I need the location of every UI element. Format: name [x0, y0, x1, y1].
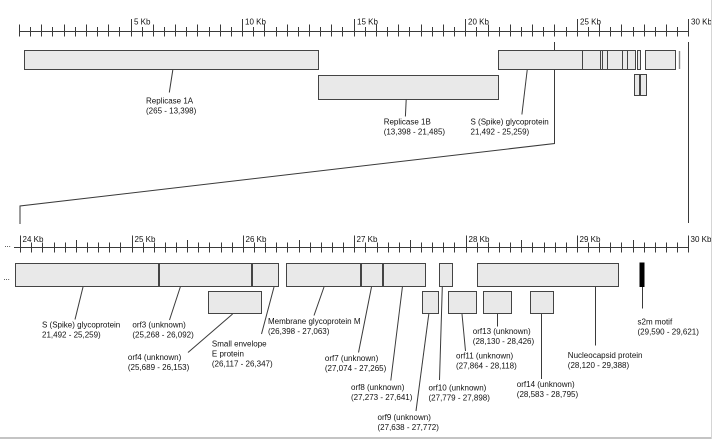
svg-text:Replicase 1A: Replicase 1A — [146, 97, 194, 106]
svg-text:27 Kb: 27 Kb — [357, 235, 378, 244]
svg-text:Nucleocapsid protein: Nucleocapsid protein — [568, 351, 643, 360]
svg-text:25 Kb: 25 Kb — [580, 18, 601, 27]
svg-text:10 Kb: 10 Kb — [245, 18, 266, 27]
svg-text:21,492 - 25,259): 21,492 - 25,259) — [42, 331, 101, 340]
svg-text:(27,273 - 27,641): (27,273 - 27,641) — [351, 393, 413, 402]
svg-text:orf7 (unknown): orf7 (unknown) — [325, 354, 379, 363]
svg-text:S (Spike) glycoprotein: S (Spike) glycoprotein — [42, 321, 120, 330]
svg-text:orf10 (unknown): orf10 (unknown) — [429, 383, 487, 392]
svg-text:25 Kb: 25 Kb — [135, 235, 156, 244]
svg-text:E protein: E protein — [212, 349, 244, 358]
svg-text:orf11 (unknown): orf11 (unknown) — [456, 351, 514, 360]
svg-text:26 Kb: 26 Kb — [246, 235, 267, 244]
svg-text:(27,074 - 27,265): (27,074 - 27,265) — [325, 364, 387, 373]
svg-text:(28,583 - 28,795): (28,583 - 28,795) — [517, 390, 579, 399]
svg-text:(265 - 13,398): (265 - 13,398) — [146, 107, 197, 116]
svg-text:(28,120 - 29,388): (28,120 - 29,388) — [568, 361, 630, 370]
svg-text:30 Kb: 30 Kb — [691, 18, 712, 27]
svg-text:S (Spike) glycoprotein: S (Spike) glycoprotein — [471, 118, 549, 127]
svg-text:orf13 (unknown): orf13 (unknown) — [473, 327, 531, 336]
svg-text:(25,268 - 26,092): (25,268 - 26,092) — [132, 330, 194, 339]
svg-text:24 Kb: 24 Kb — [23, 235, 44, 244]
svg-text:orf8 (unknown): orf8 (unknown) — [351, 383, 405, 392]
svg-text:(27,779 - 27,898): (27,779 - 27,898) — [429, 393, 491, 402]
svg-text:28 Kb: 28 Kb — [469, 235, 490, 244]
svg-text:Replicase 1B: Replicase 1B — [384, 118, 431, 127]
svg-text:Membrane glycoprotein M: Membrane glycoprotein M — [268, 317, 361, 326]
svg-text:(27,638 - 27,772): (27,638 - 27,772) — [378, 423, 440, 432]
svg-text:orf9 (unknown): orf9 (unknown) — [378, 413, 432, 422]
svg-text:(26,117 - 26,347): (26,117 - 26,347) — [212, 359, 273, 368]
svg-text:(28,130 - 28,426): (28,130 - 28,426) — [473, 337, 535, 346]
svg-text:5 Kb: 5 Kb — [134, 18, 151, 27]
svg-text:...: ... — [4, 240, 11, 249]
svg-text:(26,398 - 27,063): (26,398 - 27,063) — [268, 327, 330, 336]
svg-text:(25,689 - 26,153): (25,689 - 26,153) — [128, 363, 190, 372]
svg-text:30 Kb: 30 Kb — [691, 235, 712, 244]
svg-text:21,492 - 25,259): 21,492 - 25,259) — [471, 128, 530, 137]
svg-text:orf4 (unknown): orf4 (unknown) — [128, 353, 182, 362]
svg-text:orf3 (unknown): orf3 (unknown) — [132, 320, 186, 329]
svg-text:(27,864 - 28,118): (27,864 - 28,118) — [456, 361, 517, 370]
svg-text:Small envelope: Small envelope — [212, 339, 267, 348]
svg-text:(29,590 - 29,621): (29,590 - 29,621) — [638, 328, 700, 337]
svg-text:s2m motif: s2m motif — [638, 318, 673, 327]
svg-text:(13,398 - 21,485): (13,398 - 21,485) — [384, 128, 446, 137]
svg-text:29 Kb: 29 Kb — [580, 235, 601, 244]
svg-text:20 Kb: 20 Kb — [468, 18, 489, 27]
svg-text:orf14 (unknown): orf14 (unknown) — [517, 380, 575, 389]
svg-text:...: ... — [3, 273, 10, 282]
svg-text:15 Kb: 15 Kb — [357, 18, 378, 27]
